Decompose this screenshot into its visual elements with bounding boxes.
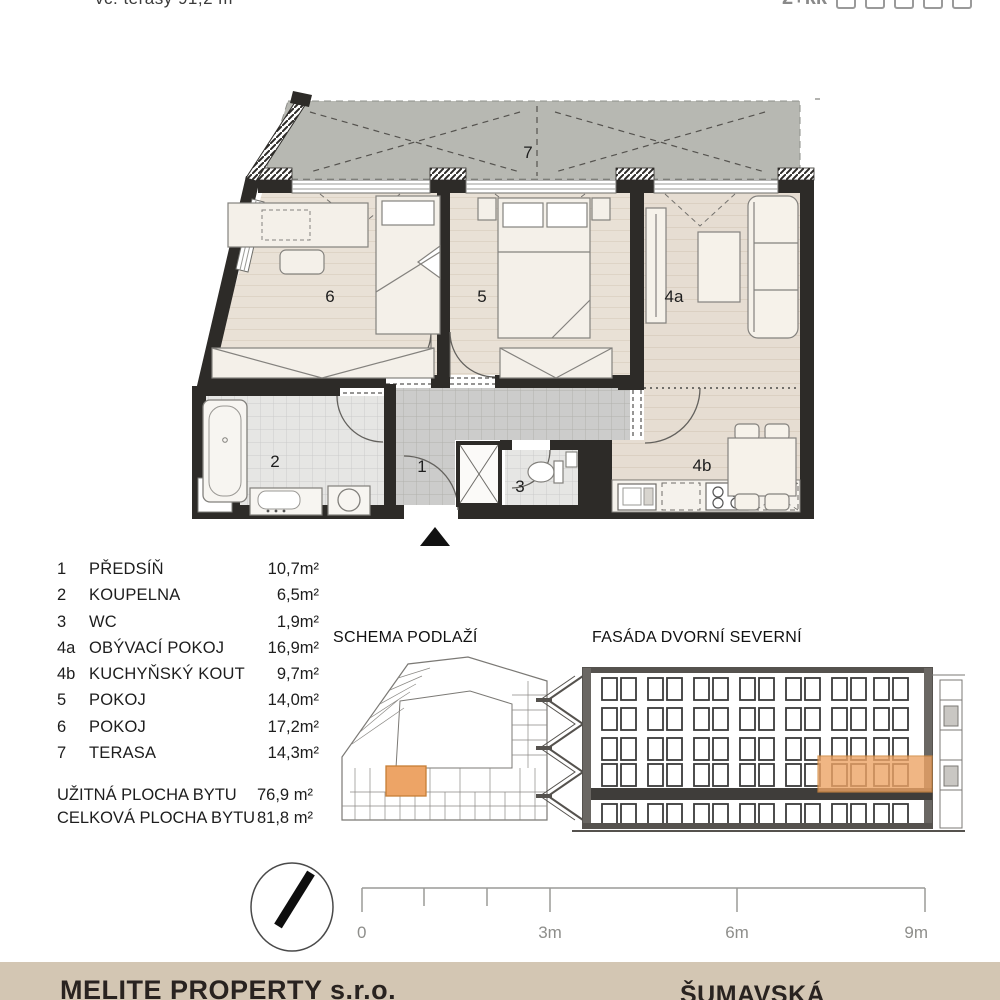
facade-highlighted-unit xyxy=(818,756,932,792)
scale-6m: 6m xyxy=(725,923,749,942)
scale-bar: 0 3m 6m 9m xyxy=(340,875,960,950)
developer-name-clipped: MELITE PROPERTY s.r.o. xyxy=(60,975,396,1000)
kitchen-number: 4b xyxy=(693,456,712,475)
bath-sink xyxy=(250,488,322,515)
legend-row: 4bKUCHYŇSKÝ KOUT9,7m² xyxy=(57,665,319,691)
toilet xyxy=(528,461,563,483)
terrace: 7 xyxy=(263,101,800,179)
wc-basin xyxy=(566,452,577,467)
footer-band: MELITE PROPERTY s.r.o. ŠUMAVSKÁ xyxy=(0,962,1000,1000)
facade-stairs xyxy=(536,676,583,820)
facade-title: FASÁDA DVORNÍ SEVERNÍ xyxy=(592,629,802,647)
usable-area-row: UŽITNÁ PLOCHA BYTU76,9 m² xyxy=(57,786,319,809)
amenity-icon xyxy=(865,0,885,9)
terrace-area-note-clipped: vč. terasy 91,2 m² xyxy=(95,0,239,9)
project-street-clipped: ŠUMAVSKÁ xyxy=(680,981,825,1000)
area-totals: UŽITNÁ PLOCHA BYTU76,9 m² CELKOVÁ PLOCHA… xyxy=(57,786,319,832)
schema-title: SCHEMA PODLAŽÍ xyxy=(333,629,478,647)
schema-highlighted-unit xyxy=(386,766,426,796)
bedroom1-number: 5 xyxy=(477,287,486,306)
wc-number: 3 xyxy=(515,477,524,496)
floor-plan: 7 xyxy=(185,88,820,553)
closet xyxy=(458,443,500,505)
page: vč. terasy 91,2 m² 2+kk xyxy=(0,0,1000,1000)
facade-annex xyxy=(932,675,965,828)
layout-label: 2+kk xyxy=(782,0,827,10)
amenity-icon xyxy=(894,0,914,9)
layout-amenity-strip-clipped: 2+kk xyxy=(782,0,972,10)
room-legend: 1PŘEDSÍŇ10,7m² 2KOUPELNA6,5m² 3WC1,9m² 4… xyxy=(57,560,319,770)
bath-number: 2 xyxy=(270,452,279,471)
legend-row: 2KOUPELNA6,5m² xyxy=(57,586,319,612)
legend-row: 4aOBÝVACÍ POKOJ16,9m² xyxy=(57,639,319,665)
facade-drawing xyxy=(530,650,970,845)
bedroom2-number: 6 xyxy=(325,287,334,306)
scale-3m: 3m xyxy=(538,923,562,942)
compass xyxy=(245,860,340,955)
amenity-icon xyxy=(952,0,972,9)
bathtub xyxy=(203,400,247,502)
legend-row: 5POKOJ14,0m² xyxy=(57,691,319,717)
legend-row: 3WC1,9m² xyxy=(57,613,319,639)
entry-arrow xyxy=(420,527,450,546)
amenity-icon xyxy=(923,0,943,9)
total-area-row: CELKOVÁ PLOCHA BYTU81,8 m² xyxy=(57,809,319,832)
legend-row: 1PŘEDSÍŇ10,7m² xyxy=(57,560,319,586)
terrace-number: 7 xyxy=(523,143,532,162)
amenity-icon xyxy=(836,0,856,9)
facade-windows xyxy=(602,678,908,826)
washing-machine xyxy=(328,486,370,515)
scale-0: 0 xyxy=(357,923,366,942)
legend-row: 7TERASA14,3m² xyxy=(57,744,319,770)
living-number: 4a xyxy=(665,287,684,306)
scale-9m: 9m xyxy=(904,923,928,942)
legend-row: 6POKOJ17,2m² xyxy=(57,718,319,744)
hall-number: 1 xyxy=(417,457,426,476)
